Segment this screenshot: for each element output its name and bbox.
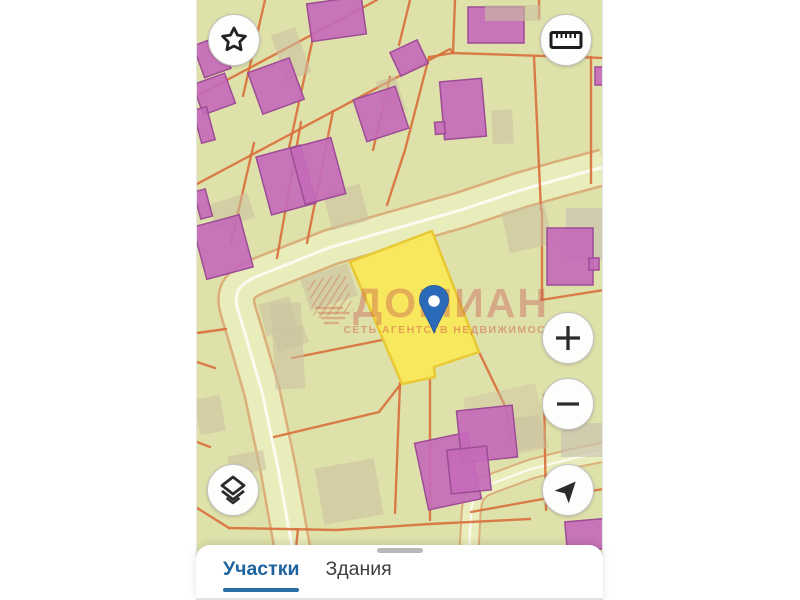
navigation-arrow-icon xyxy=(553,475,583,505)
bottom-sheet: Участки Здания xyxy=(196,545,603,600)
active-tab-underline xyxy=(223,588,299,593)
ruler-icon xyxy=(549,28,583,52)
locate-button[interactable] xyxy=(542,464,594,516)
favorites-button[interactable] xyxy=(208,14,260,66)
building-shadow-overlay xyxy=(485,5,541,21)
minus-icon xyxy=(553,389,583,419)
tab-plots-label: Участки xyxy=(223,558,299,580)
app-screen: ДОМИАН СЕТЬ АГЕНТСТВ НЕДВИЖИМОСТИ xyxy=(0,0,800,600)
map-canvas[interactable]: ДОМИАН СЕТЬ АГЕНТСТВ НЕДВИЖИМОСТИ xyxy=(196,0,603,600)
plus-icon xyxy=(553,323,583,353)
tab-plots[interactable]: Участки xyxy=(223,558,299,592)
watermark-brand: ДОМИАН xyxy=(353,280,549,326)
zoom-in-button[interactable] xyxy=(542,312,594,364)
layers-icon xyxy=(217,474,249,506)
tab-buildings[interactable]: Здания xyxy=(325,558,391,592)
drag-handle[interactable] xyxy=(377,548,423,553)
star-icon xyxy=(219,25,249,55)
tab-buildings-label: Здания xyxy=(325,558,391,580)
layers-button[interactable] xyxy=(207,464,259,516)
measure-button[interactable] xyxy=(540,14,592,66)
watermark-tagline: СЕТЬ АГЕНТСТВ НЕДВИЖИМОСТИ xyxy=(343,324,562,336)
zoom-out-button[interactable] xyxy=(542,378,594,430)
